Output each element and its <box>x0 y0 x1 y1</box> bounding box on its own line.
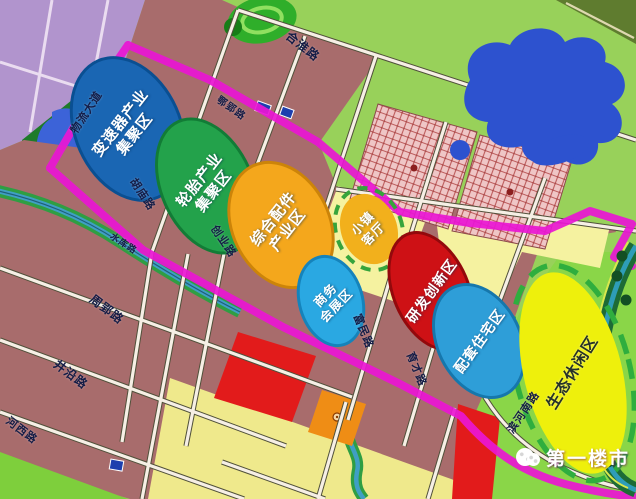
zone-label: 商务会展区 <box>306 276 355 326</box>
zone-label: 综合配件产业区 <box>247 189 314 261</box>
zone-label: 生态休闲区 <box>543 333 602 413</box>
zone-label: 小镇客厅 <box>349 209 389 249</box>
watermark: 第一楼市 <box>516 444 630 471</box>
map-canvas: 变速器产业集聚区轮胎产业集聚区综合配件产业区小镇客厅商务会展区研发创新区配套住宅… <box>0 0 636 499</box>
watermark-text: 第一楼市 <box>546 444 630 471</box>
zone-label: 配套住宅区 <box>450 306 507 376</box>
watermark-logo <box>516 445 540 471</box>
watermark-logo-circle <box>527 453 540 466</box>
